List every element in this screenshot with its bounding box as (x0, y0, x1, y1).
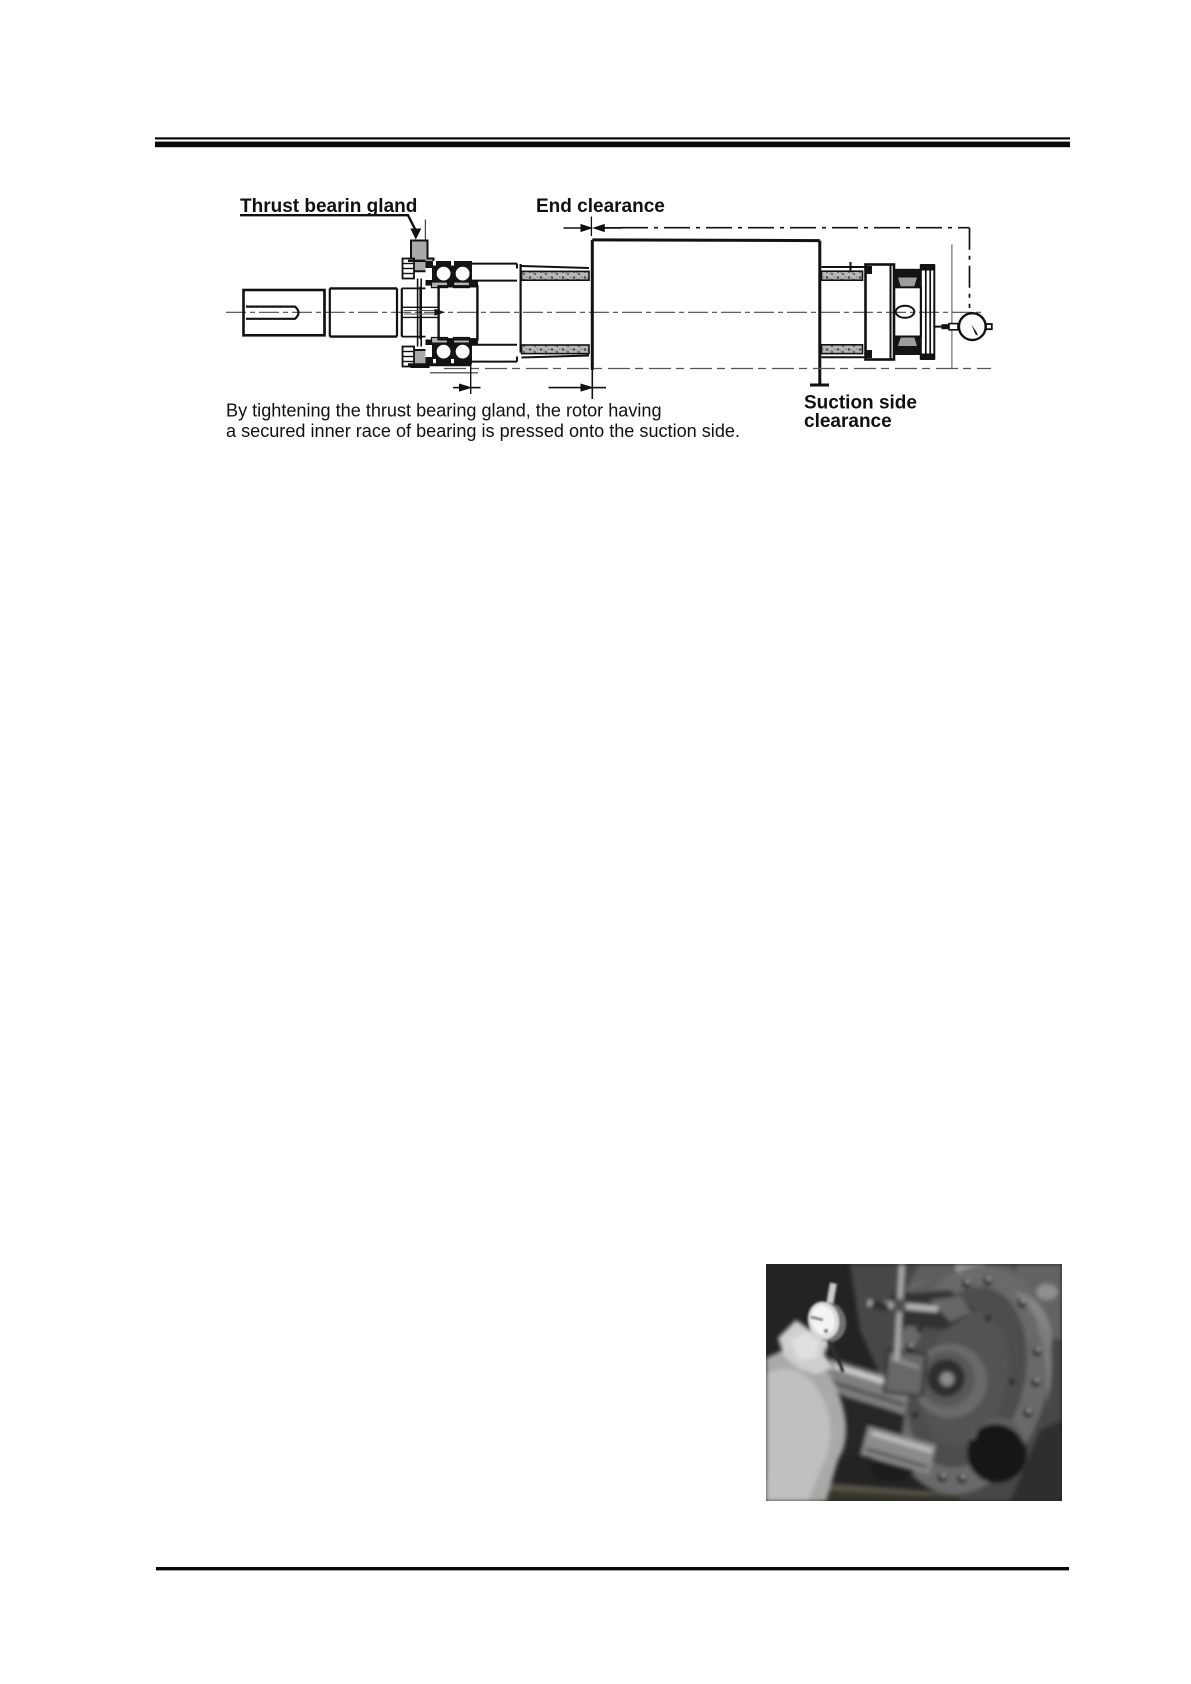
svg-text:clearance: clearance (804, 411, 892, 432)
svg-text:a secured inner race of bearin: a secured inner race of bearing is press… (226, 421, 740, 441)
svg-text:End clearance: End clearance (536, 196, 665, 217)
svg-text:Thrust bearin gland: Thrust bearin gland (240, 196, 417, 217)
svg-text:By tightening the thrust beari: By tightening the thrust bearing gland, … (226, 401, 662, 421)
